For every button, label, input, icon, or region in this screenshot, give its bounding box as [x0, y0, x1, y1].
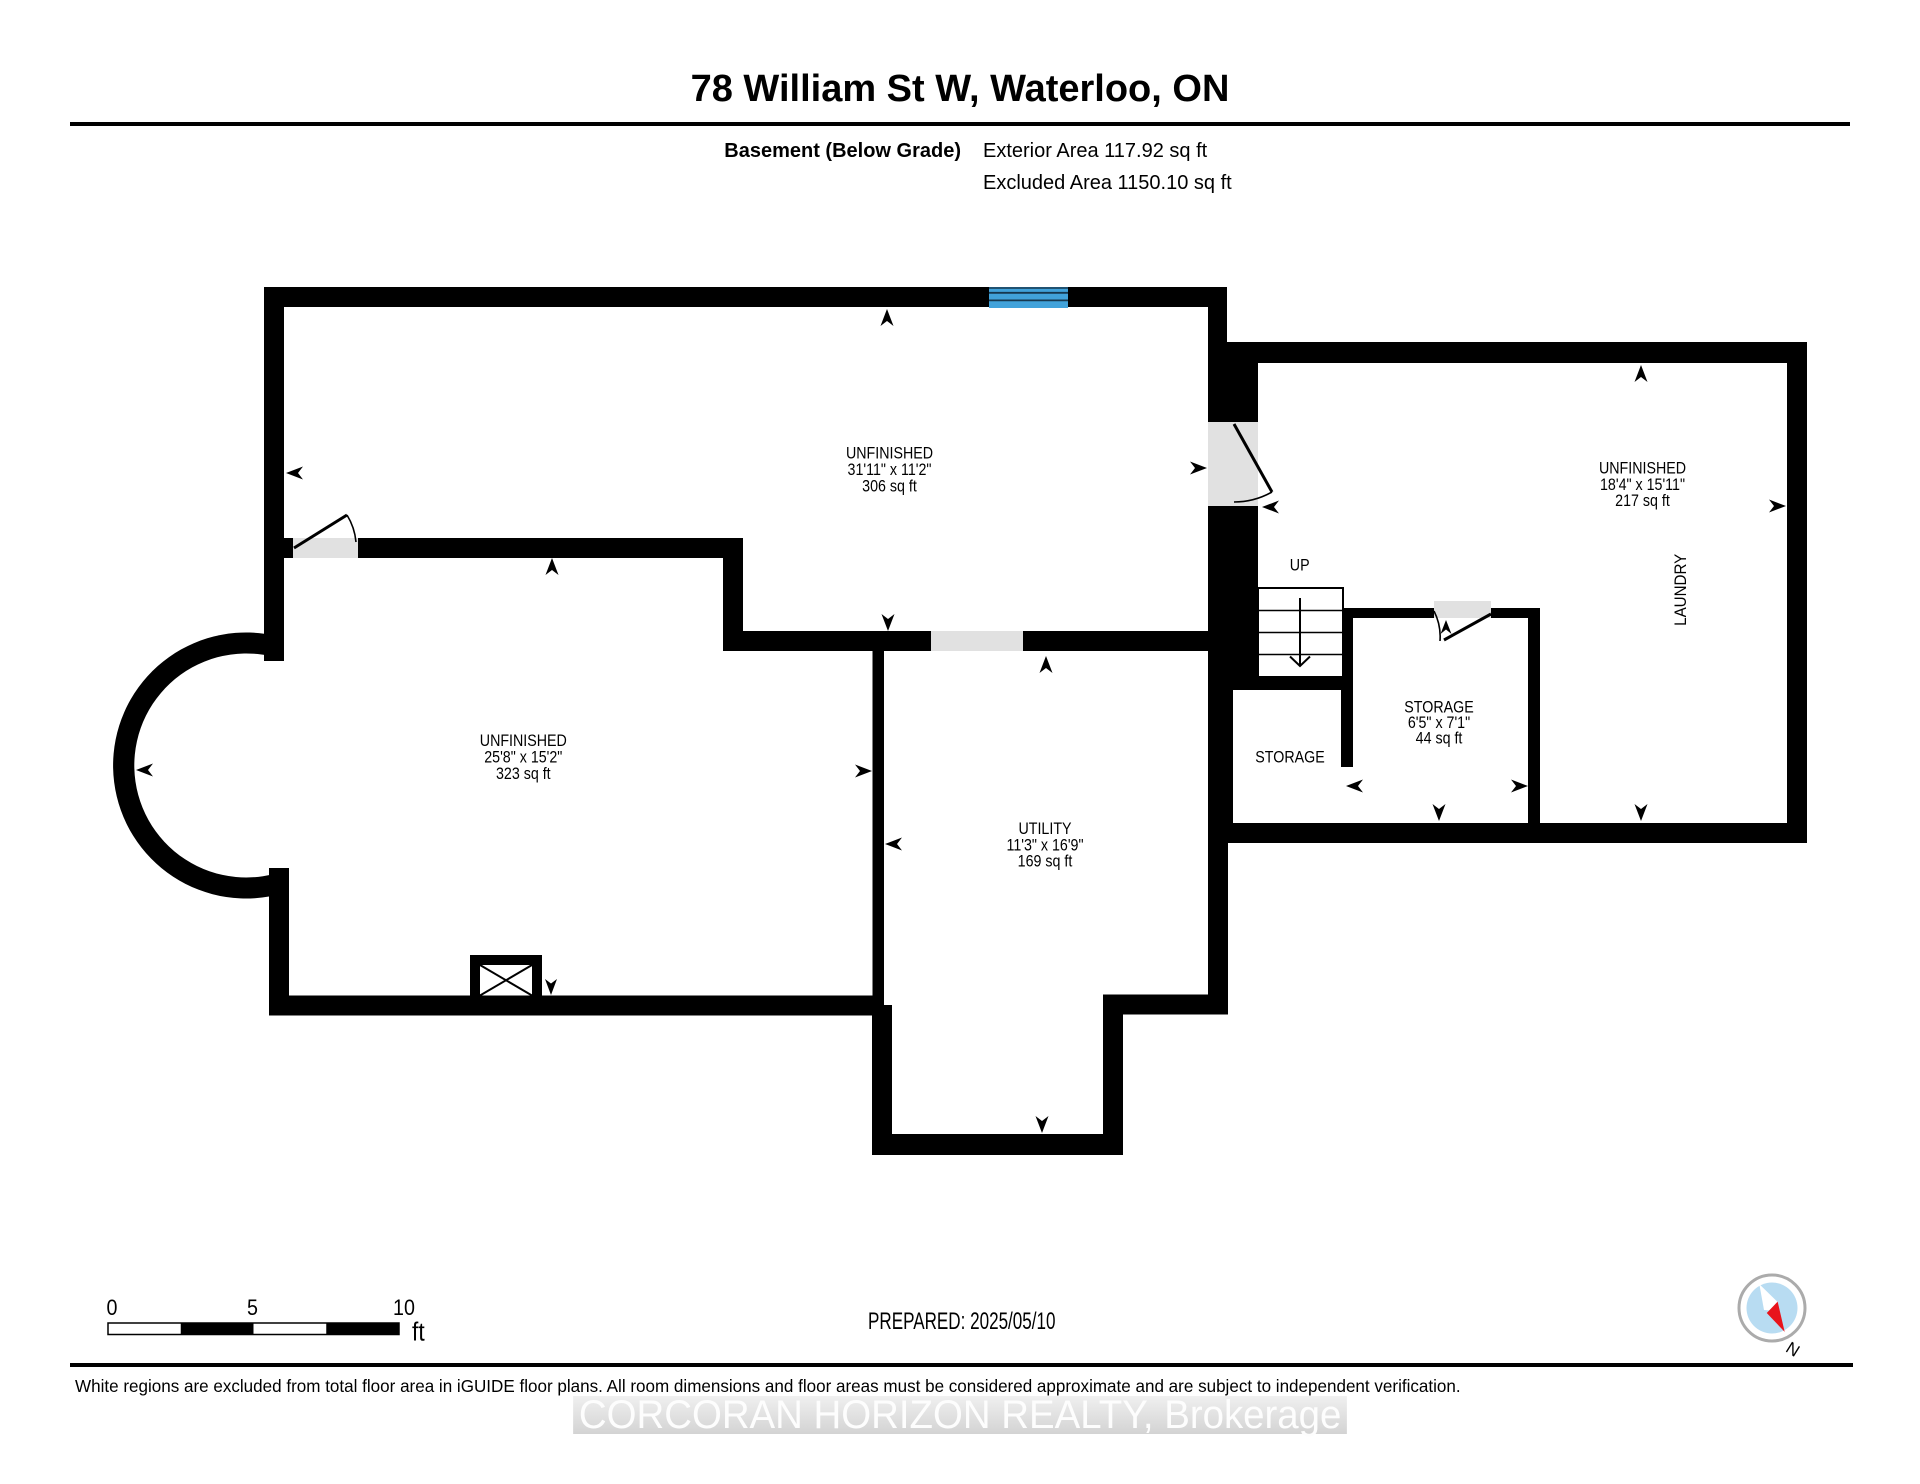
svg-text:UNFINISHED: UNFINISHED [480, 732, 567, 750]
svg-text:169 sq ft: 169 sq ft [1018, 853, 1073, 871]
svg-text:5: 5 [247, 1296, 258, 1320]
svg-text:10: 10 [393, 1296, 415, 1320]
svg-text:306 sq ft: 306 sq ft [862, 477, 917, 495]
svg-text:25'8" x 15'2": 25'8" x 15'2" [484, 748, 562, 766]
svg-text:LAUNDRY: LAUNDRY [1672, 553, 1690, 626]
svg-text:217 sq ft: 217 sq ft [1615, 492, 1670, 510]
svg-text:UP: UP [1290, 557, 1310, 575]
svg-text:ft: ft [412, 1318, 425, 1347]
svg-text:UTILITY: UTILITY [1018, 820, 1071, 838]
svg-text:0: 0 [107, 1296, 118, 1320]
svg-text:STORAGE: STORAGE [1255, 749, 1324, 767]
svg-text:323 sq ft: 323 sq ft [496, 765, 551, 783]
svg-text:N: N [1782, 1338, 1802, 1361]
svg-text:44 sq ft: 44 sq ft [1416, 730, 1463, 748]
